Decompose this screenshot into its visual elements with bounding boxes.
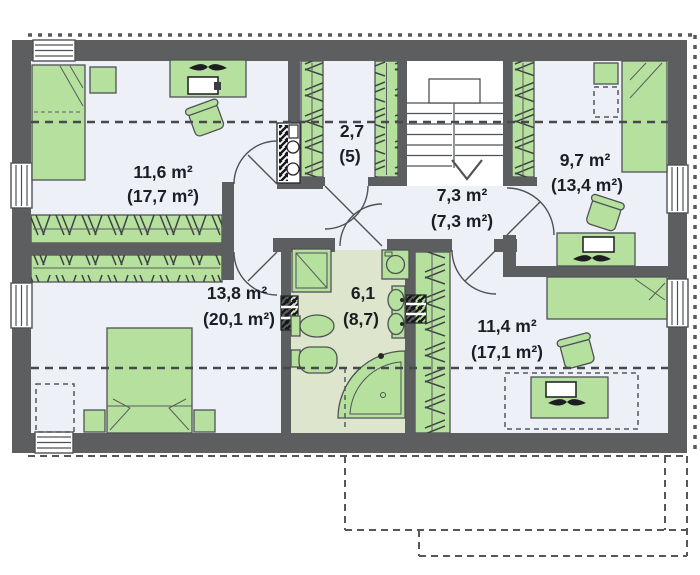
nightstand [194,410,215,432]
desk [531,377,608,418]
window-left-1 [11,163,32,208]
label-bathroom-area: 6,1 [351,283,376,303]
label-bedroom-bottom-right-gross: (17,1 m²) [471,342,543,362]
window-right-1 [667,165,688,213]
chimney-duct-bathroom-right [406,295,426,323]
floor-plan-page: 11,6 m² (17,7 m²) 2,7 (5) 7,3 m² (7,3 m²… [0,0,700,575]
nightstand [594,63,618,84]
label-wardrobe-area: 2,7 [340,121,364,141]
wall-right [668,40,687,453]
label-bedroom-bottom-left-area: 13,8 m² [207,283,267,303]
bed [622,61,667,172]
bed [547,277,667,319]
computer-monitor [583,237,614,252]
wall-between-right-bedrooms [503,266,668,277]
window-bottom [35,432,73,453]
label-hall-area: 7,3 m² [437,185,488,205]
nightstand [90,67,116,93]
window-top [33,40,75,61]
label-bedroom-top-left-area: 11,6 m² [133,162,193,182]
desk [557,233,635,266]
chimney-duct-main [277,123,300,183]
floor-plan-drawing: 11,6 m² (17,7 m²) 2,7 (5) 7,3 m² (7,3 m²… [0,0,700,575]
toilet [291,315,334,337]
label-bedroom-top-right-gross: (13,4 m²) [551,175,623,195]
closet-strip-bedroom-bottom-left [31,255,222,282]
wall-top [12,40,687,61]
closet-strip-bedroom-top-right [512,61,534,177]
label-bathroom-gross: (8,7) [343,309,379,329]
label-hall-gross: (7,3 m²) [431,211,493,231]
label-bedroom-top-left-gross: (17,7 m²) [127,186,199,206]
wardrobe-strip-right [375,61,398,177]
closet-strip-bedroom-bottom-right [415,252,450,433]
computer-monitor [188,77,218,94]
wardrobe-strip-left [301,61,323,177]
label-bedroom-top-right-area: 9,7 m² [560,150,611,170]
label-bedroom-bottom-left-gross: (20,1 m²) [203,309,275,329]
stair-wall-left [398,61,407,186]
label-wardrobe-gross: (5) [339,146,360,166]
shower [292,249,331,292]
bathtub-faucet [378,353,384,359]
wall-bottom [12,433,687,453]
computer-monitor [546,382,576,397]
closet-strip-bedroom-top-left [31,215,222,243]
nightstand [84,410,105,432]
label-bedroom-bottom-right-area: 11,4 m² [477,316,537,336]
wall-left [12,40,31,453]
window-right-2 [667,279,688,327]
washing-machine [382,250,409,279]
double-bed [107,328,192,433]
stair-landing [429,79,480,103]
stair-wall-right [503,61,512,186]
bathroom-wall-left [281,250,291,433]
desk [170,60,246,97]
staircase [407,61,503,186]
window-left-2 [11,283,32,328]
